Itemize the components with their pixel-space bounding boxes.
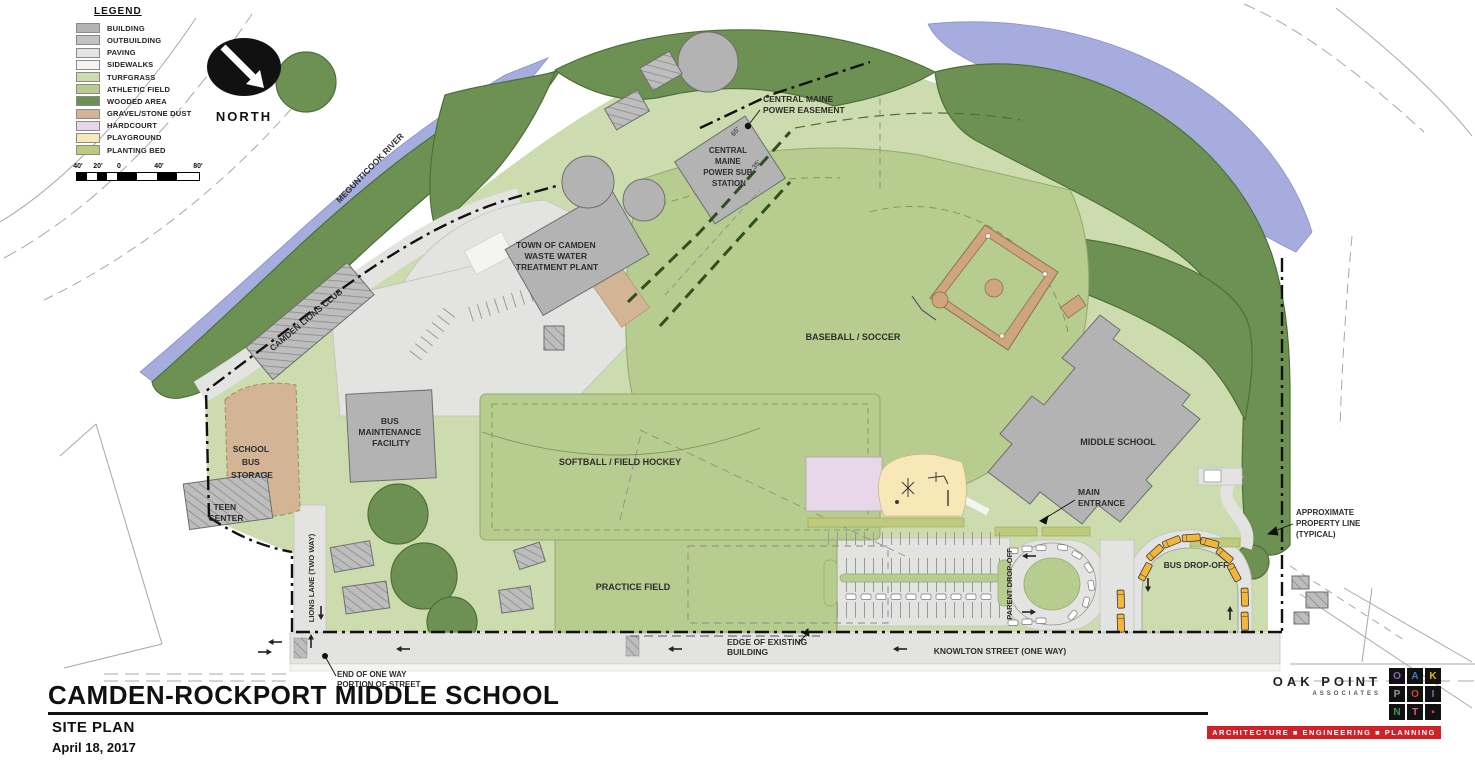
property-line-label: APPROXIMATE PROPERTY LINE (TYPICAL)	[1296, 508, 1363, 539]
north-label: NORTH	[204, 109, 284, 124]
wooded-area-swatch	[76, 96, 100, 106]
practice-label: PRACTICE FIELD	[596, 582, 671, 592]
page-subtitle: SITE PLAN	[52, 719, 1208, 736]
legend-item: PLAYGROUND	[76, 133, 226, 144]
tank	[562, 156, 614, 208]
scale-bar: 40' 20' 0 40' 80'	[76, 163, 202, 181]
site-plan-page: MEGUNTICOOK RIVER CENTRAL MAINE POWER EA…	[0, 0, 1475, 763]
middle-school-label: MIDDLE SCHOOL	[1080, 437, 1156, 447]
firm-name: OAK POINT	[1273, 674, 1381, 689]
softball-label: SOFTBALL / FIELD HOCKEY	[559, 457, 681, 467]
logo-banner: ARCHITECTURE ■ ENGINEERING ■ PLANNING	[1207, 726, 1441, 739]
page-date: April 18, 2017	[52, 740, 1208, 755]
paving-swatch	[76, 48, 100, 58]
playground-swatch	[76, 133, 100, 143]
building-swatch	[76, 23, 100, 33]
planting-bed-swatch	[76, 145, 100, 155]
north-arrow: NORTH	[204, 36, 284, 124]
legend-item: BUILDING	[76, 23, 226, 34]
firm-logo: OAK POINT ASSOCIATES O A K P O I N T ▪ A…	[1191, 668, 1441, 739]
legend-title: LEGEND	[94, 6, 226, 17]
bus-dropoff-label: BUS DROP-OFF	[1164, 560, 1229, 570]
logo-tile-grid: O A K P O I N T ▪	[1389, 668, 1441, 720]
outbuilding-swatch	[76, 35, 100, 45]
hardcourt-swatch	[76, 121, 100, 131]
power-easement-label: CENTRAL MAINE POWER EASEMENT	[763, 94, 846, 115]
legend-item: PLANTING BED	[76, 145, 226, 156]
title-block: CAMDEN-ROCKPORT MIDDLE SCHOOL SITE PLAN …	[48, 680, 1208, 755]
gravel-swatch	[76, 109, 100, 119]
parent-dropoff-label: PARENT DROP-OFF	[1005, 548, 1014, 620]
baseball-label: BASEBALL / SOCCER	[806, 332, 901, 342]
hardcourt-area	[806, 457, 882, 511]
tank	[623, 179, 665, 221]
firm-subname: ASSOCIATES	[1273, 691, 1381, 697]
athletic-field-swatch	[76, 84, 100, 94]
page-title: CAMDEN-ROCKPORT MIDDLE SCHOOL	[48, 680, 1208, 715]
north-arrow-icon	[204, 36, 284, 102]
knowlton-label: KNOWLTON STREET (ONE WAY)	[934, 646, 1067, 656]
sidewalks-swatch	[76, 60, 100, 70]
turfgrass-swatch	[76, 72, 100, 82]
playground-area	[878, 454, 966, 516]
lions-lane-label: LIONS LANE (TWO WAY)	[307, 533, 316, 622]
waste-plant-label: TOWN OF CAMDEN WASTE WATER TREATMENT PLA…	[516, 240, 599, 272]
tank	[678, 32, 738, 92]
teen-center-label: TEEN CENTER	[209, 502, 244, 523]
